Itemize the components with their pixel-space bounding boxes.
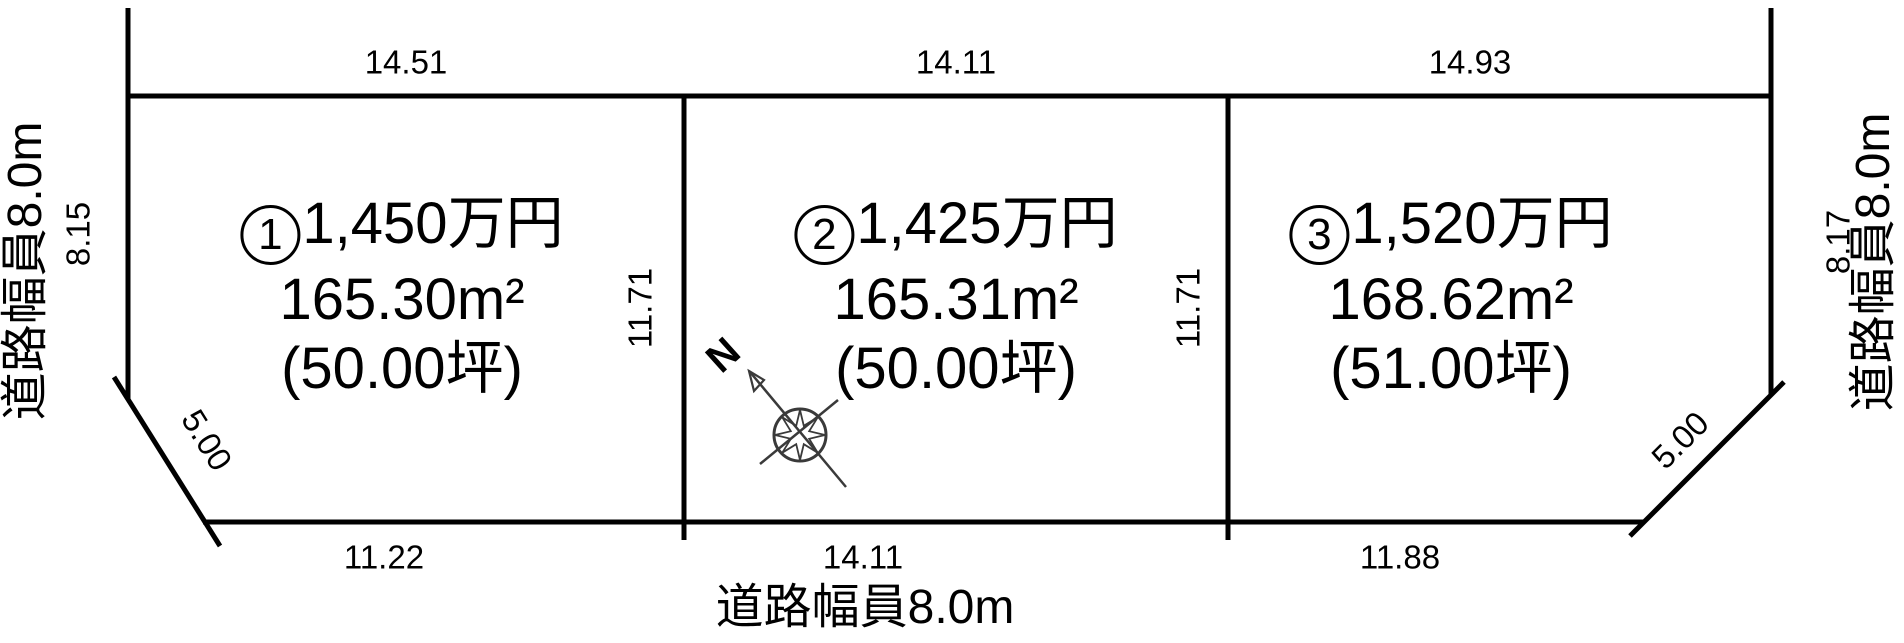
top-dimension-lot1: 14.51	[365, 46, 448, 79]
compass-star	[775, 410, 825, 460]
lot2-price-line: 21,425万円	[794, 189, 1117, 265]
lot2-area-tsubo: (50.00坪)	[794, 334, 1117, 403]
lot2-price: 1,425万円	[856, 191, 1117, 256]
lot1-label-block: 11,450万円 165.30m² (50.00坪)	[240, 189, 563, 403]
left-road-width-label: 道路幅員8.0m	[2, 122, 50, 421]
bottom-dimension-lot1: 11.22	[344, 541, 424, 574]
side-dimension-lot2: 11.71	[1172, 268, 1205, 348]
bottom-road-width-label: 道路幅員8.0m	[716, 584, 1015, 632]
side-dimension-lot1: 11.71	[624, 268, 657, 348]
lot1-price: 1,450万円	[302, 191, 563, 256]
top-dimension-lot2: 14.11	[916, 46, 996, 79]
lot2-label-block: 21,425万円 165.31m² (50.00坪)	[794, 189, 1117, 403]
lot2-area-m2: 165.31m²	[794, 265, 1117, 334]
bottom-dimension-lot2: 14.11	[823, 541, 903, 574]
lot1-number-badge: 1	[240, 205, 300, 265]
lot3-price-line: 31,520万円	[1289, 189, 1612, 265]
compass-north-label: N	[698, 329, 749, 381]
compass-circle	[774, 409, 826, 461]
lot3-area-tsubo: (51.00坪)	[1289, 334, 1612, 403]
lot3-area-m2: 168.62m²	[1289, 265, 1612, 334]
left-frontage-dimension: 8.15	[62, 202, 95, 266]
land-plot-diagram: N 14.51 14.11 14.93 11,450万円 165.30m² (5…	[0, 0, 1904, 643]
top-dimension-lot3: 14.93	[1429, 46, 1512, 79]
lot2-number-badge: 2	[794, 205, 854, 265]
lot1-area-tsubo: (50.00坪)	[240, 334, 563, 403]
bottom-dimension-lot3: 11.88	[1360, 541, 1440, 574]
lot3-label-block: 31,520万円 168.62m² (51.00坪)	[1289, 189, 1612, 403]
lot3-number-badge: 3	[1289, 205, 1349, 265]
right-road-width-label: 道路幅員8.0m	[1850, 113, 1898, 412]
lot1-area-m2: 165.30m²	[240, 265, 563, 334]
lot3-price: 1,520万円	[1351, 191, 1612, 256]
lot1-price-line: 11,450万円	[240, 189, 563, 265]
